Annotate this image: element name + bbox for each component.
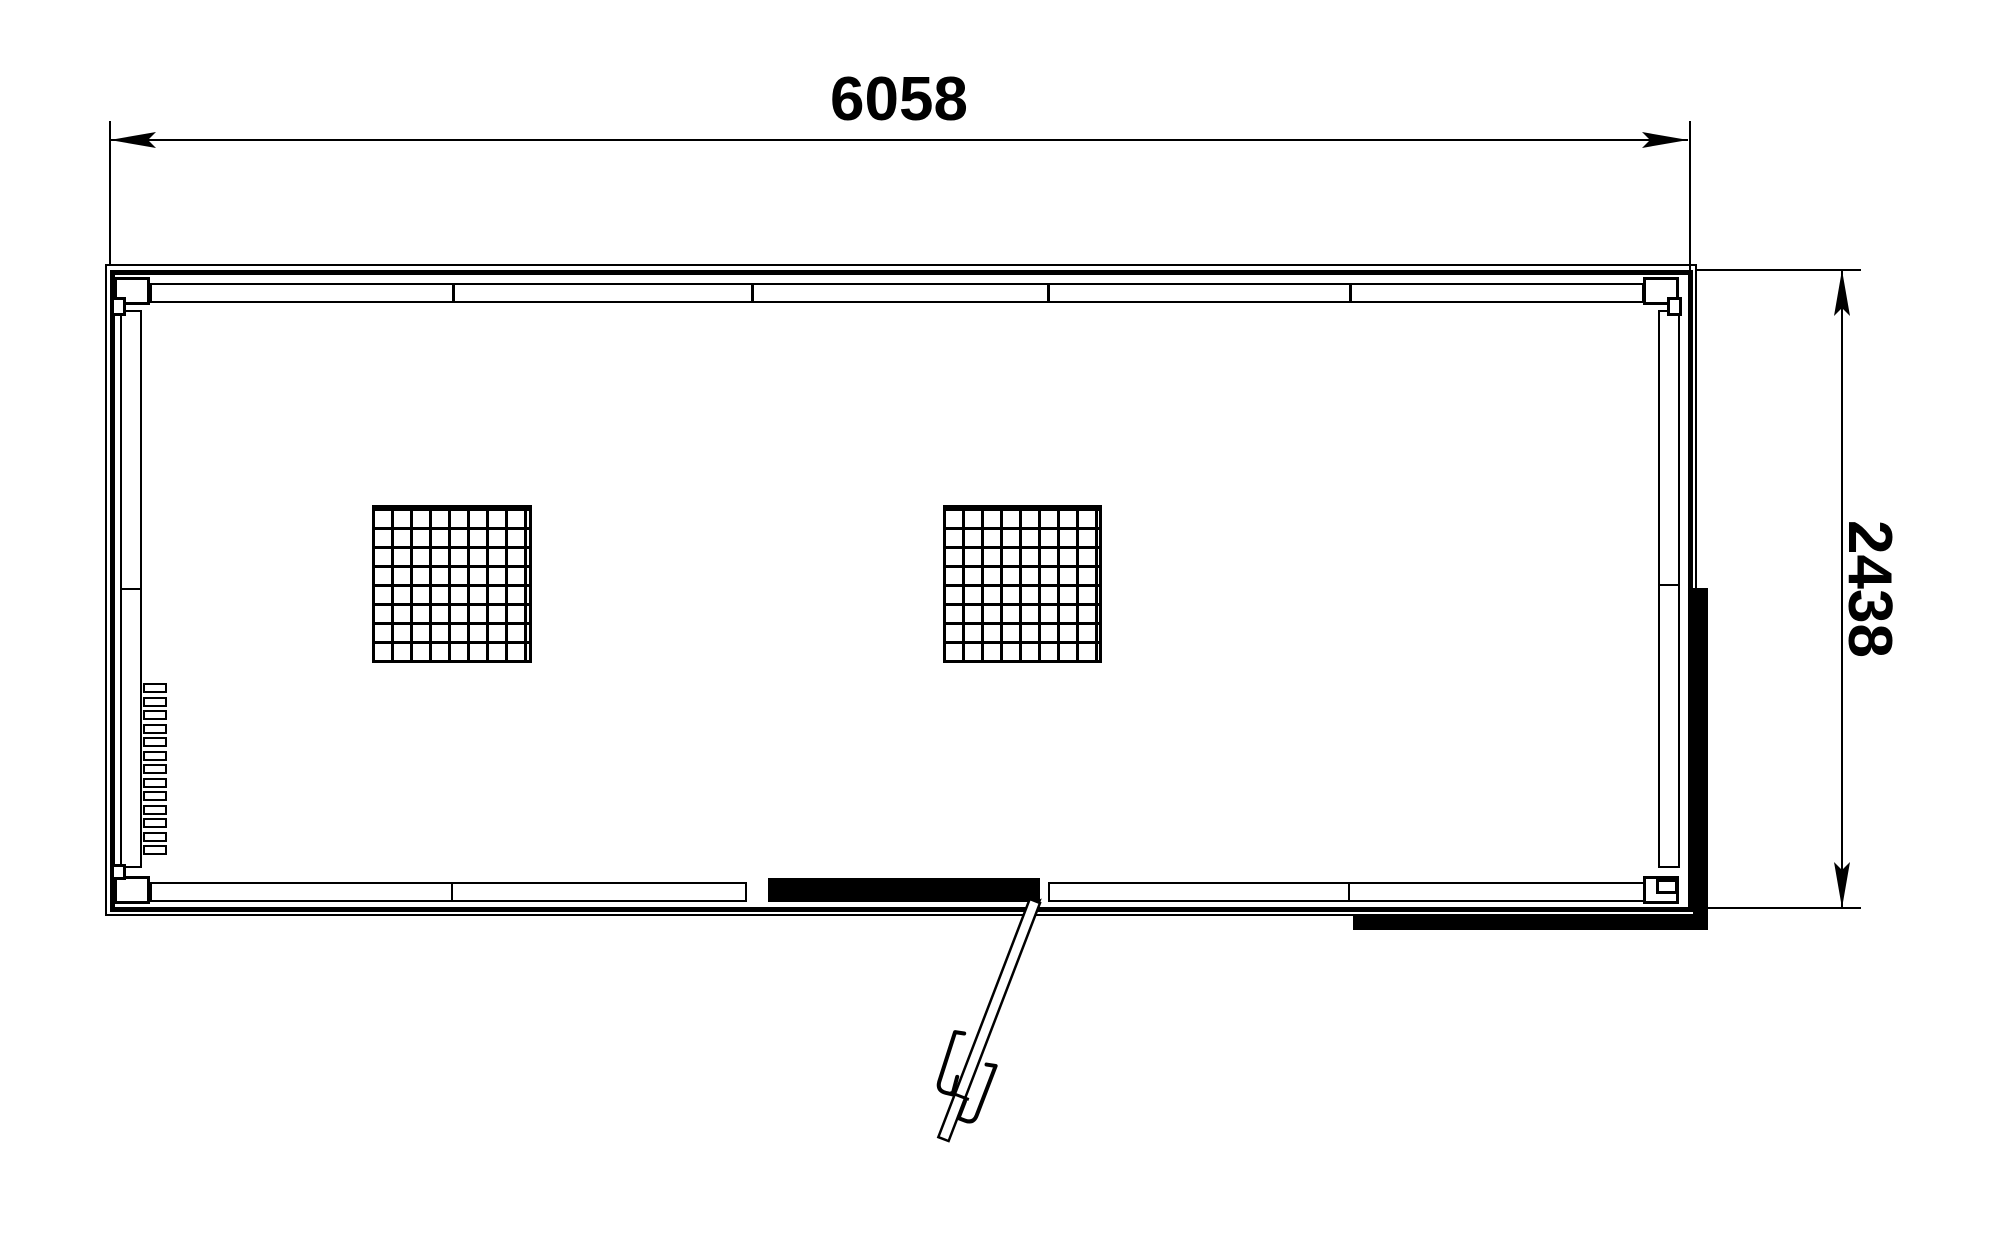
door-assembly	[918, 887, 1058, 1148]
door-leaf	[938, 899, 1040, 1141]
drawing-overlay	[0, 0, 2000, 1235]
floor-plan-canvas: 6058 2438	[0, 0, 2000, 1235]
